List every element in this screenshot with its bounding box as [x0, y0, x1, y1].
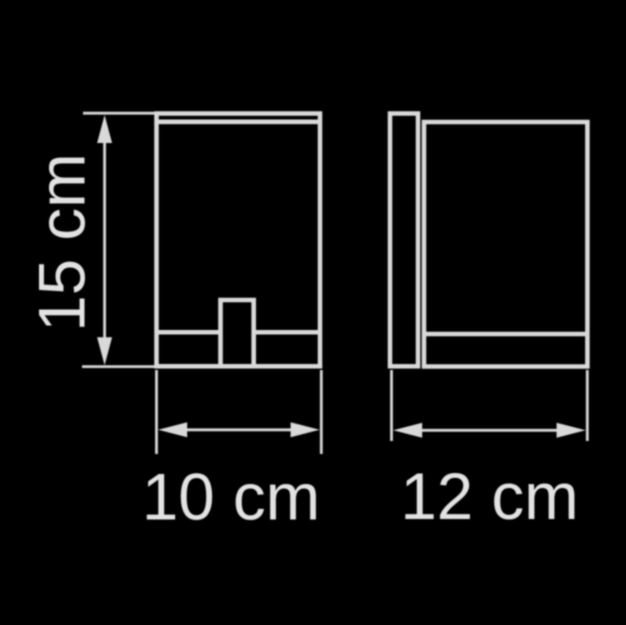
svg-text:10 cm: 10 cm [142, 461, 320, 534]
svg-text:12 cm: 12 cm [400, 460, 578, 533]
svg-text:15 cm: 15 cm [26, 153, 99, 331]
